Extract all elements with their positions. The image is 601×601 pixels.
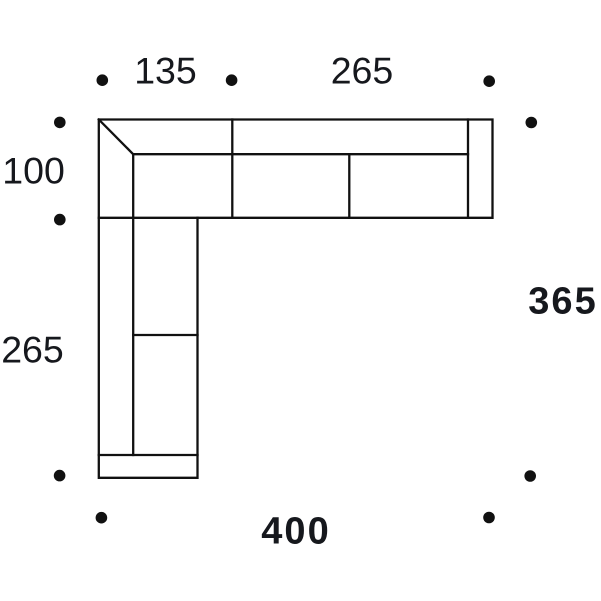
svg-text:265: 265: [1, 329, 64, 371]
svg-text:135: 135: [134, 50, 197, 92]
svg-text:400: 400: [261, 511, 330, 553]
svg-text:265: 265: [331, 50, 394, 92]
svg-text:100: 100: [2, 150, 65, 192]
svg-text:365: 365: [528, 281, 597, 323]
